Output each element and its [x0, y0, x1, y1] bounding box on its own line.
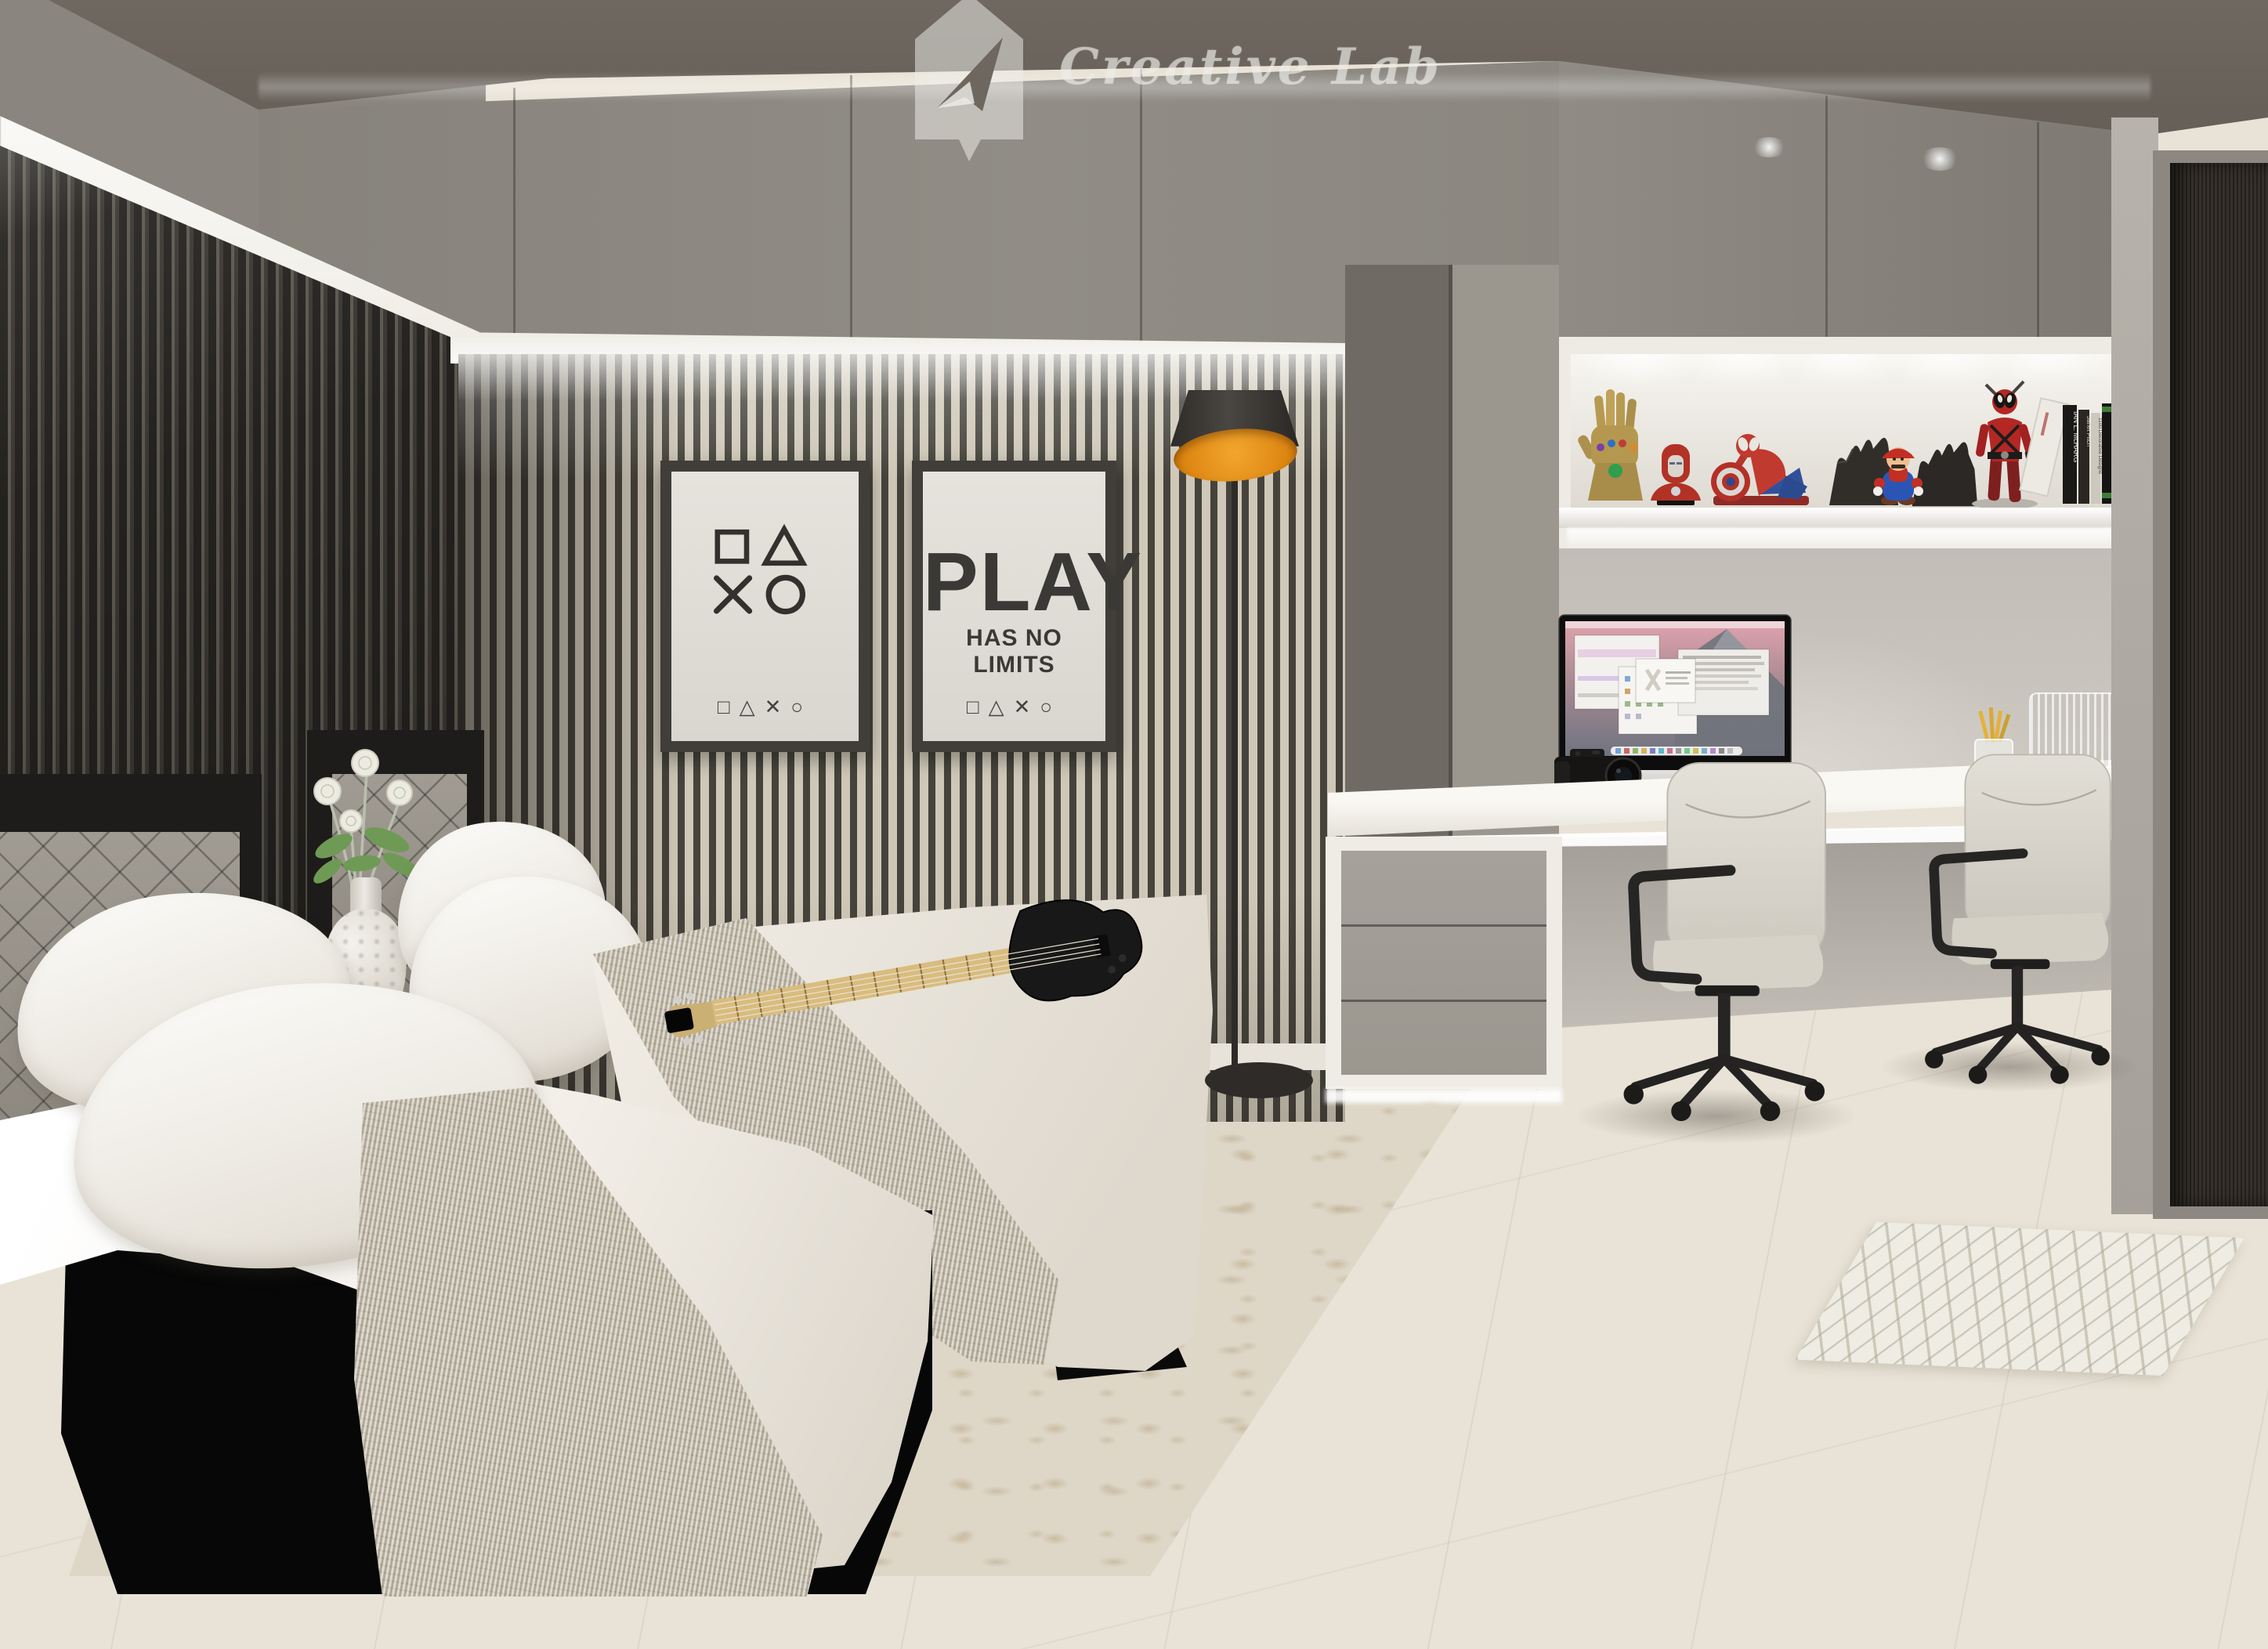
poster-title: PLAY	[923, 541, 1105, 624]
drawer-seam	[1341, 1000, 1546, 1002]
chair-base	[1635, 1059, 1813, 1105]
poster-subtitle: HAS NO LIMITS	[923, 625, 1105, 678]
chair-backrest	[1667, 763, 1825, 960]
tall-wardrobe-cabinet	[1345, 265, 1559, 846]
room-render: □△✕○ PLAY HAS NO LIMITS □△✕○	[0, 0, 2268, 1649]
poster-playstation-symbols: □△✕○	[660, 461, 870, 752]
pencil	[1978, 711, 1990, 742]
shelf-led-strip	[1567, 528, 2143, 551]
chair-column	[1718, 993, 1731, 1058]
ceiling-light-glare	[1751, 137, 1787, 157]
chair-casters	[1925, 1047, 2110, 1084]
office-chair	[1590, 758, 1843, 1126]
poster-canvas: □△✕○	[671, 472, 859, 741]
chair-column	[2012, 966, 2023, 1025]
cabinet-seam	[850, 75, 852, 348]
electric-guitar	[662, 876, 1163, 1079]
menu-bar	[1565, 621, 1785, 628]
poster-footer-symbols: □△✕○	[923, 695, 1105, 719]
drawer-seam	[1341, 924, 1546, 927]
floor-lamp-base	[1205, 1062, 1313, 1098]
about-window	[1636, 659, 1695, 703]
drawer-unit	[1341, 851, 1546, 1075]
cabinet-seam	[1825, 96, 1828, 345]
chair-casters	[1624, 1081, 1825, 1121]
house-plane-icon	[893, 0, 1050, 169]
shadow-wolf-figure	[1912, 442, 1978, 506]
poster-play-has-no-limits: PLAY HAS NO LIMITS □△✕○	[912, 461, 1116, 752]
cabinet-seam	[513, 88, 515, 346]
office-chair	[1894, 750, 2126, 1089]
shelf-board	[1559, 508, 2150, 528]
drawer-led-strip	[1326, 1089, 1562, 1103]
infinity-gauntlet-figure	[1576, 389, 1643, 501]
door	[2170, 163, 2268, 1206]
ps-shapes-icon	[695, 526, 836, 644]
chair-backrest	[1965, 754, 2110, 935]
cabinet-seam	[2037, 122, 2039, 345]
watermark-logo: Creative Lab	[893, 0, 1332, 169]
book-spine: 1100 Decorative Designs	[2091, 413, 2103, 504]
book-title: 1100 Decorative Designs	[2097, 418, 2103, 475]
chair-base	[1936, 1027, 2100, 1069]
floor-lamp-pole	[1232, 475, 1238, 1079]
ceiling-light-glare	[1919, 147, 1960, 171]
poster-canvas: PLAY HAS NO LIMITS □△✕○	[923, 472, 1105, 741]
display-shelf-contents: IAN L. McHARG Janet Fitch 1100 Decorativ…	[1571, 356, 2139, 509]
guitar-body	[1000, 888, 1149, 1007]
iron-man-bust-figure	[1651, 444, 1701, 505]
poster-footer-symbols: □△✕○	[671, 695, 859, 719]
spider-man-figure	[1711, 434, 1809, 505]
book-spine: IAN L. McHARG	[2063, 405, 2080, 504]
book-spine: Janet Fitch	[2078, 410, 2093, 504]
watermark-brand: Creative Lab	[1059, 38, 1441, 96]
